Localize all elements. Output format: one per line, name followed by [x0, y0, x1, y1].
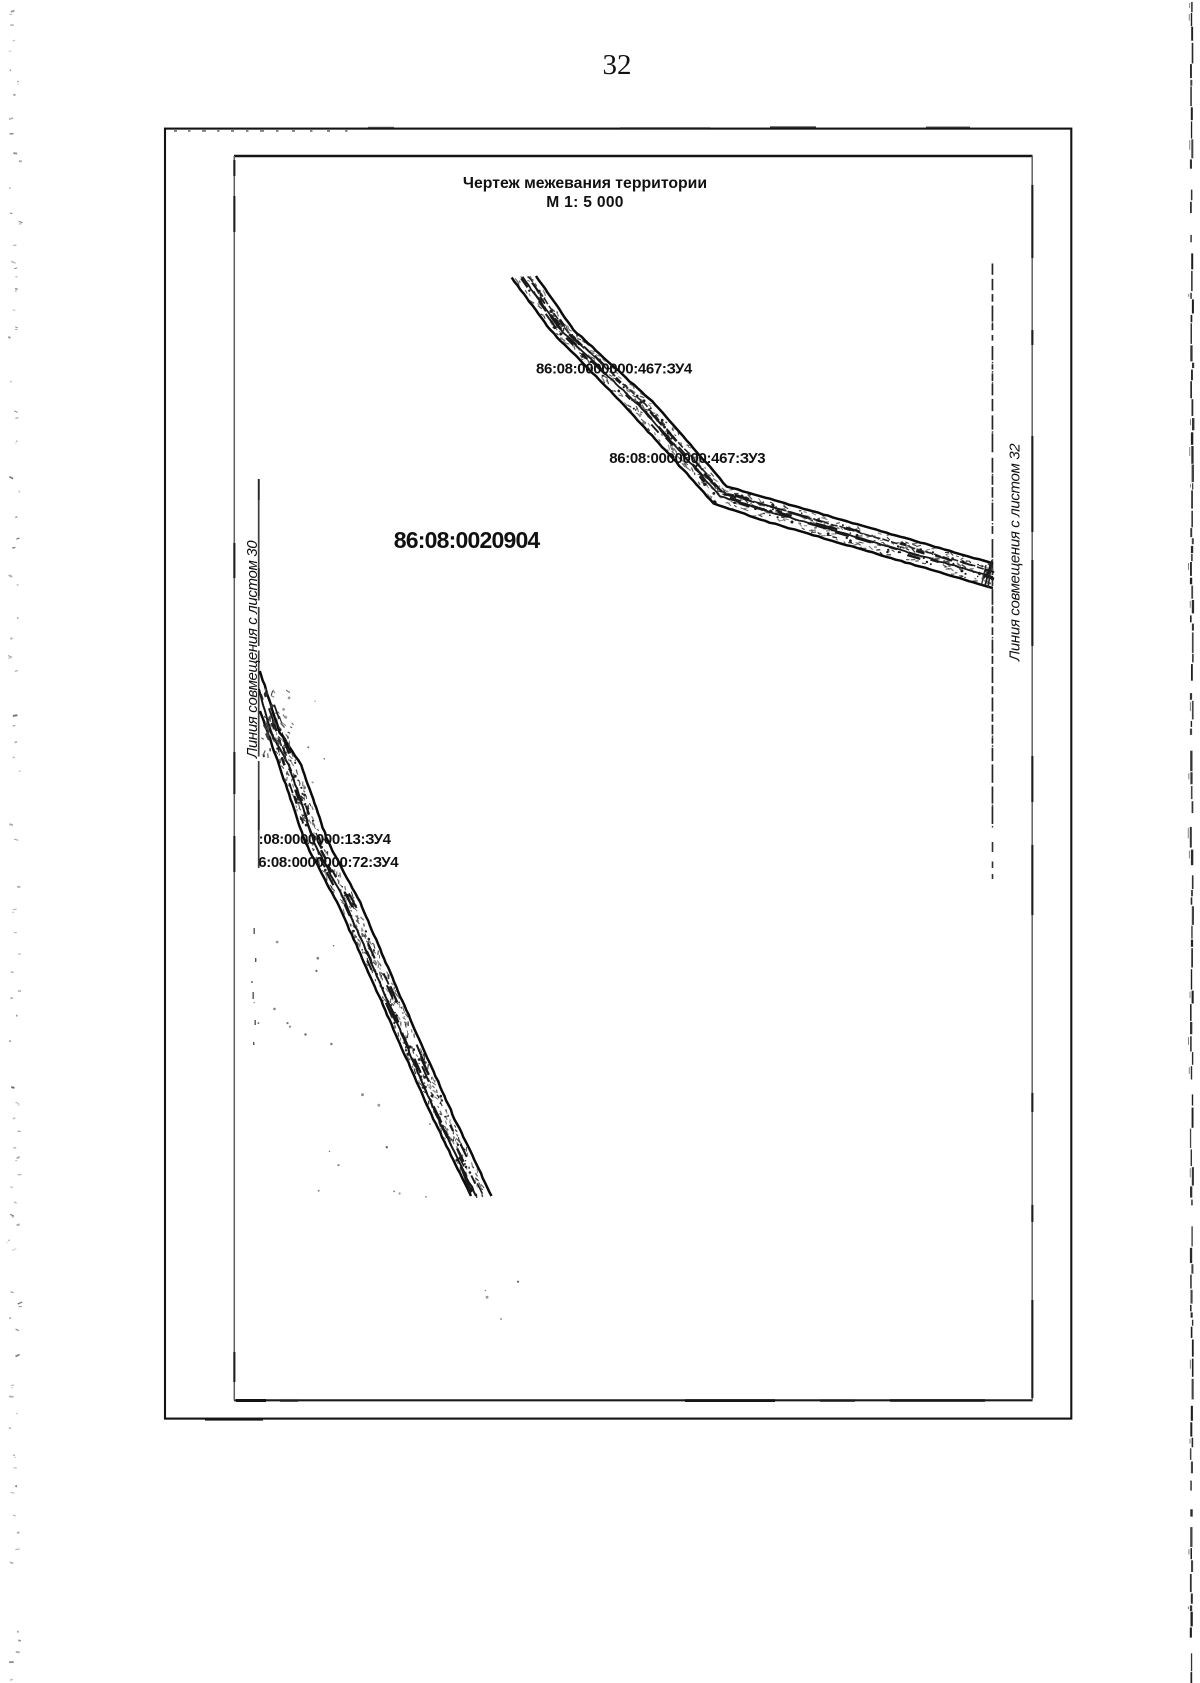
svg-text:Линия совмещения с листом 32: Линия совмещения с листом 32: [1007, 443, 1024, 662]
svg-text:Линия совмещения с листом 30: Линия совмещения с листом 30: [244, 540, 261, 759]
svg-text:М 1: 5 000: М 1: 5 000: [546, 194, 624, 211]
svg-text:86:08:0000000:467:ЗУ4: 86:08:0000000:467:ЗУ4: [536, 361, 693, 378]
svg-text:6:08:0000000:72:ЗУ4: 6:08:0000000:72:ЗУ4: [258, 854, 399, 871]
svg-text:86:08:0020904: 86:08:0020904: [394, 527, 541, 553]
svg-text:Чертеж межевания территории: Чертеж межевания территории: [463, 175, 707, 192]
svg-text:32: 32: [603, 49, 632, 81]
svg-text:86:08:0000000:467:ЗУ3: 86:08:0000000:467:ЗУ3: [609, 450, 765, 467]
svg-text:6:08:0000000:13:ЗУ4: 6:08:0000000:13:ЗУ4: [251, 831, 392, 848]
